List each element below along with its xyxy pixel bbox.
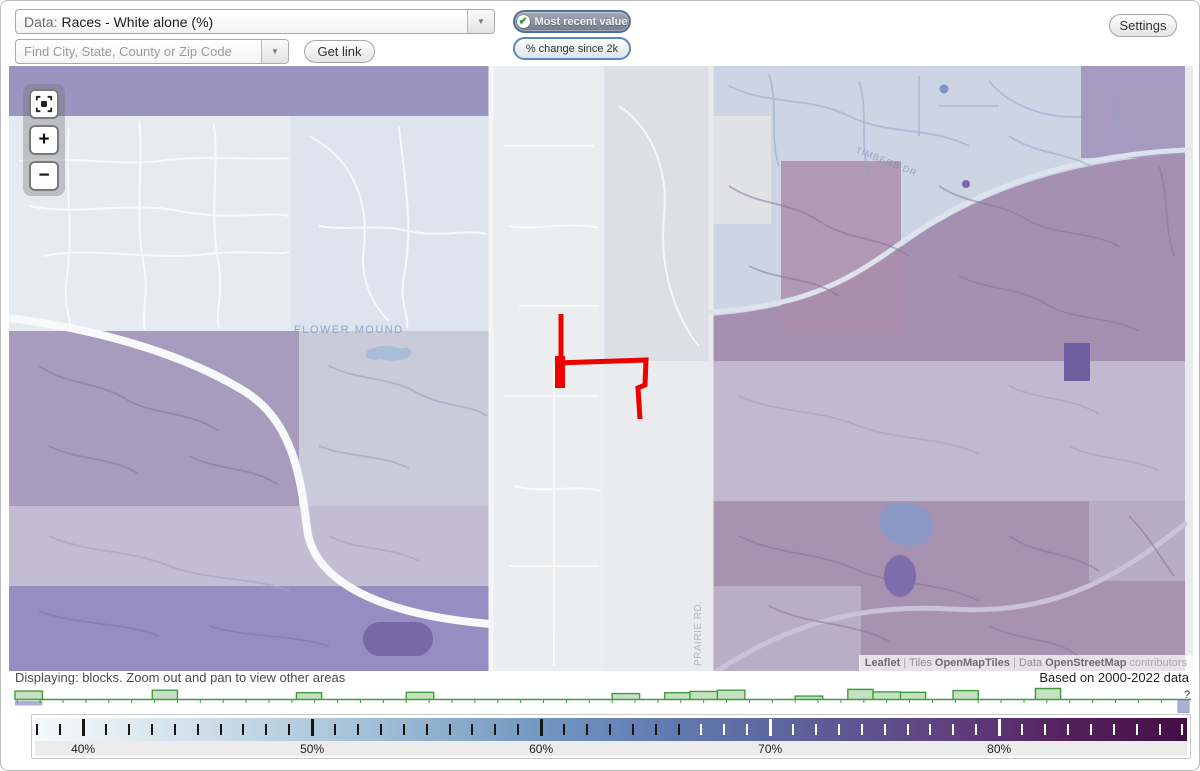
legend-tick-label: 40% bbox=[71, 742, 95, 756]
legend-minor-tick bbox=[700, 724, 702, 735]
legend-minor-tick bbox=[357, 724, 359, 735]
app-window: Data: Races - White alone (%) ▼ ▼ Get li… bbox=[0, 0, 1200, 771]
legend-minor-tick bbox=[403, 724, 405, 735]
legend-minor-tick bbox=[426, 724, 428, 735]
openstreetmap-link[interactable]: OpenStreetMap bbox=[1045, 657, 1126, 669]
legend-minor-tick bbox=[1067, 724, 1069, 735]
attribution-separator: | bbox=[900, 657, 909, 669]
legend-minor-tick bbox=[655, 724, 657, 735]
legend-minor-tick bbox=[884, 724, 886, 735]
location-search-input[interactable] bbox=[16, 44, 261, 59]
legend-minor-tick bbox=[1021, 724, 1023, 735]
legend-minor-tick bbox=[792, 724, 794, 735]
legend-minor-tick bbox=[471, 724, 473, 735]
legend-minor-tick bbox=[151, 724, 153, 735]
settings-button[interactable]: Settings bbox=[1109, 14, 1177, 37]
legend-tick-label: 60% bbox=[529, 742, 553, 756]
zoom-out-button[interactable]: − bbox=[29, 161, 59, 191]
legend-minor-tick bbox=[1181, 724, 1183, 735]
histogram-help-icon[interactable]: ? bbox=[1184, 689, 1190, 701]
location-search: ▼ bbox=[15, 39, 289, 64]
map-zoom-controls: + − bbox=[23, 84, 65, 196]
legend-tick-labels: 40%50%60%70%80% bbox=[35, 741, 1187, 756]
legend-minor-tick bbox=[36, 724, 38, 735]
legend-minor-tick bbox=[861, 724, 863, 735]
legend-minor-tick bbox=[334, 724, 336, 735]
fullscreen-button[interactable] bbox=[29, 89, 59, 119]
most-recent-value-toggle[interactable]: ✔ Most recent value bbox=[513, 10, 631, 33]
census-blocks bbox=[9, 66, 1193, 671]
legend-minor-tick bbox=[1113, 724, 1115, 735]
legend-minor-tick bbox=[609, 724, 611, 735]
legend-minor-tick bbox=[197, 724, 199, 735]
data-vintage-note: Based on 2000-2022 data bbox=[1039, 670, 1189, 685]
displaying-status: Displaying: blocks. Zoom out and pan to … bbox=[15, 670, 345, 685]
legend-major-tick bbox=[311, 719, 314, 736]
legend-minor-tick bbox=[929, 724, 931, 735]
legend-major-tick bbox=[769, 719, 772, 736]
legend-minor-tick bbox=[563, 724, 565, 735]
chevron-down-icon[interactable]: ▼ bbox=[261, 40, 288, 63]
leaflet-link[interactable]: Leaflet bbox=[865, 657, 900, 669]
legend-minor-tick bbox=[105, 724, 107, 735]
color-scale-legend: 40%50%60%70%80% bbox=[31, 714, 1191, 759]
top-toolbar: Data: Races - White alone (%) ▼ ▼ Get li… bbox=[1, 1, 1199, 66]
legend-major-tick bbox=[540, 719, 543, 736]
choropleth-map: FLOWER MOUND PRAIRIE RD. TIMBERS DR bbox=[9, 66, 1193, 671]
legend-minor-tick bbox=[265, 724, 267, 735]
chevron-down-icon: ▼ bbox=[467, 10, 494, 33]
attribution-text: contributors bbox=[1126, 657, 1187, 669]
legend-minor-tick bbox=[952, 724, 954, 735]
percent-change-toggle[interactable]: % change since 2k bbox=[513, 37, 631, 60]
legend-minor-tick bbox=[380, 724, 382, 735]
legend-minor-tick bbox=[59, 724, 61, 735]
get-link-button[interactable]: Get link bbox=[304, 40, 375, 63]
legend-major-tick bbox=[82, 719, 85, 736]
legend-minor-tick bbox=[1090, 724, 1092, 735]
legend-minor-tick bbox=[586, 724, 588, 735]
legend-major-tick bbox=[998, 719, 1001, 736]
legend-minor-tick bbox=[678, 724, 680, 735]
legend-minor-tick bbox=[632, 724, 634, 735]
legend-minor-tick bbox=[746, 724, 748, 735]
legend-tick-label: 50% bbox=[300, 742, 324, 756]
zoom-in-button[interactable]: + bbox=[29, 125, 59, 155]
legend-minor-tick bbox=[220, 724, 222, 735]
data-select-prefix: Data: bbox=[24, 14, 57, 30]
legend-tick-label: 70% bbox=[758, 742, 782, 756]
legend-minor-tick bbox=[815, 724, 817, 735]
legend-minor-tick bbox=[128, 724, 130, 735]
percent-change-label: % change since 2k bbox=[526, 43, 618, 55]
legend-minor-tick bbox=[1136, 724, 1138, 735]
data-layer-select[interactable]: Data: Races - White alone (%) ▼ bbox=[15, 9, 495, 34]
legend-minor-tick bbox=[1159, 724, 1161, 735]
legend-minor-tick bbox=[975, 724, 977, 735]
legend-minor-tick bbox=[242, 724, 244, 735]
attribution-text: Data bbox=[1019, 657, 1045, 669]
value-distribution-histogram: ? bbox=[1, 687, 1199, 714]
legend-tick-label: 80% bbox=[987, 742, 1011, 756]
overflow-block-marker bbox=[1178, 701, 1189, 713]
openmaptiles-link[interactable]: OpenMapTiles bbox=[935, 657, 1010, 669]
legend-minor-tick bbox=[174, 724, 176, 735]
attribution-text: Tiles bbox=[909, 657, 935, 669]
road-label-prairie-rd: PRAIRIE RD. bbox=[693, 600, 704, 666]
legend-minor-tick bbox=[907, 724, 909, 735]
most-recent-value-label: Most recent value bbox=[535, 16, 628, 28]
map-attribution: Leaflet | Tiles OpenMapTiles | Data Open… bbox=[859, 655, 1193, 671]
map-canvas[interactable]: FLOWER MOUND PRAIRIE RD. TIMBERS DR + − … bbox=[9, 66, 1193, 671]
legend-minor-tick bbox=[1044, 724, 1046, 735]
fullscreen-icon bbox=[35, 95, 53, 113]
legend-minor-tick bbox=[723, 724, 725, 735]
legend-minor-tick bbox=[494, 724, 496, 735]
check-icon: ✔ bbox=[517, 15, 530, 28]
legend-minor-tick bbox=[449, 724, 451, 735]
place-label-flower-mound: FLOWER MOUND bbox=[294, 324, 404, 336]
legend-minor-tick bbox=[517, 724, 519, 735]
legend-gradient-bar bbox=[35, 718, 1187, 741]
legend-minor-tick bbox=[288, 724, 290, 735]
attribution-separator: | bbox=[1010, 657, 1019, 669]
histogram-highlight-marker bbox=[15, 701, 42, 706]
data-select-value: Races - White alone (%) bbox=[61, 14, 213, 30]
legend-minor-tick bbox=[838, 724, 840, 735]
histogram-step-area bbox=[15, 689, 1191, 700]
